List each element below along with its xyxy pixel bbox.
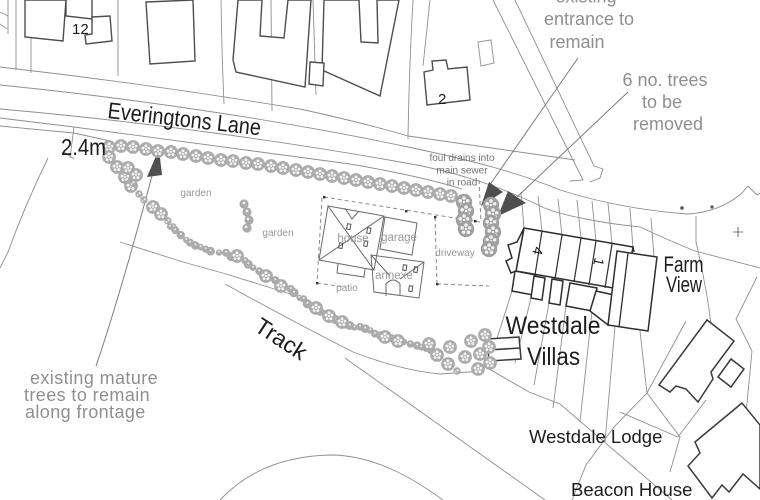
svg-text:12: 12 xyxy=(72,21,89,38)
svg-text:garden: garden xyxy=(180,188,211,199)
svg-text:Westdale: Westdale xyxy=(506,312,601,340)
svg-text:2.4m: 2.4m xyxy=(61,134,106,160)
svg-text:annexe: annexe xyxy=(375,270,413,282)
svg-text:patio: patio xyxy=(336,283,358,294)
svg-text:driveway: driveway xyxy=(435,248,474,259)
svg-text:foul drains into: foul drains into xyxy=(429,153,494,164)
svg-text:removed: removed xyxy=(633,114,703,134)
svg-text:garden: garden xyxy=(262,228,293,239)
svg-text:existing: existing xyxy=(555,0,616,7)
svg-text:in road: in road xyxy=(447,178,478,189)
svg-text:garage: garage xyxy=(381,232,417,244)
svg-text:along frontage: along frontage xyxy=(25,402,146,422)
svg-text:remain: remain xyxy=(549,32,604,52)
svg-text:house: house xyxy=(337,233,368,245)
svg-text:to be: to be xyxy=(642,92,682,112)
svg-text:6 no. trees: 6 no. trees xyxy=(622,70,707,90)
svg-text:Villas: Villas xyxy=(527,343,580,371)
svg-text:Westdale Lodge: Westdale Lodge xyxy=(529,426,662,447)
svg-text:Beacon House: Beacon House xyxy=(571,479,692,500)
svg-text:2: 2 xyxy=(438,91,446,108)
svg-text:entrance to: entrance to xyxy=(544,9,634,29)
svg-text:main sewer: main sewer xyxy=(436,166,488,177)
svg-text:View: View xyxy=(666,272,702,297)
